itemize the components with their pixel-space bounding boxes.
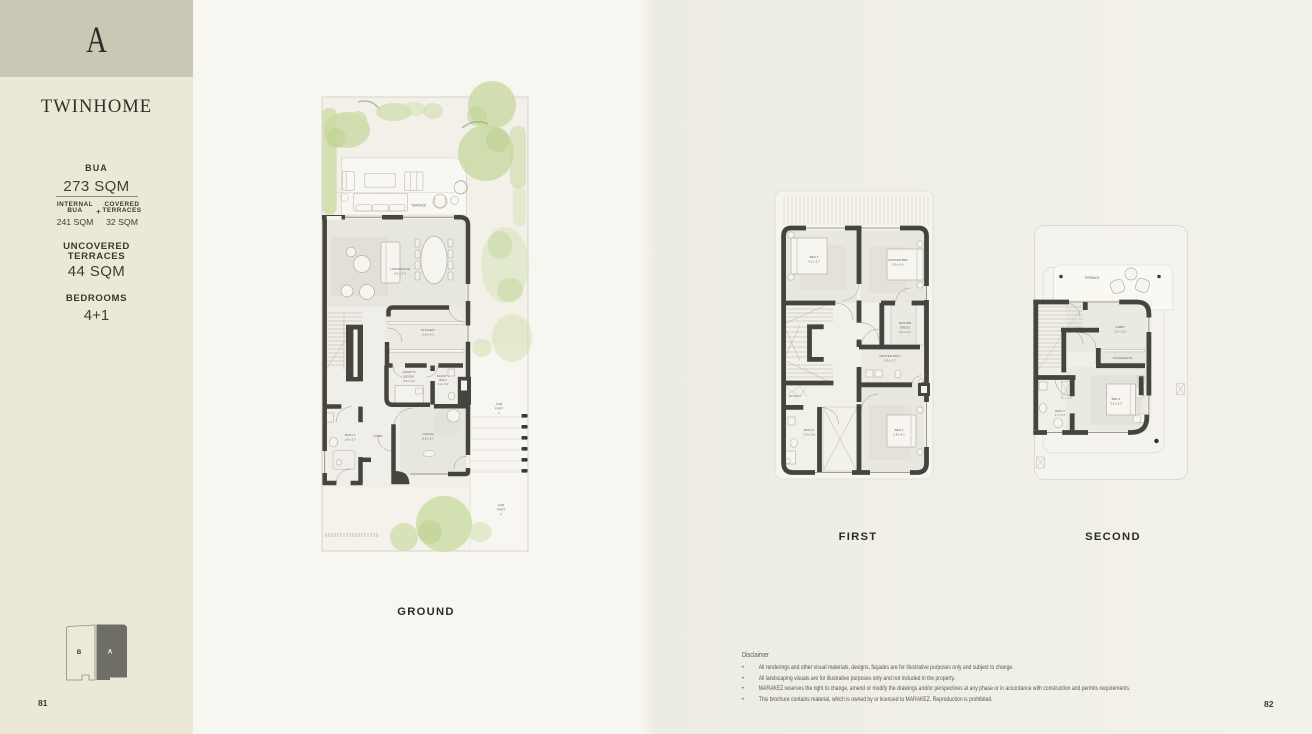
svg-text:1.7 x 2.7: 1.7 x 2.7 [1055,413,1066,417]
svg-text:LIVINGSPACE: LIVINGSPACE [390,267,410,271]
svg-text:MASTER BED: MASTER BED [888,258,908,262]
svg-text:4.2 x 3.7: 4.2 x 3.7 [808,260,820,264]
svg-text:BED 2: BED 2 [895,428,904,432]
svg-text:BATH 4: BATH 4 [345,433,356,437]
svg-text:NANNY'S: NANNY'S [402,370,415,374]
svg-text:MASTER BATH: MASTER BATH [879,354,900,358]
svg-text:1.8 x 3.7: 1.8 x 3.7 [344,438,356,442]
svg-text:PORT: PORT [497,508,505,512]
svg-text:3.5 x 3.7: 3.5 x 3.7 [422,437,434,441]
svg-text:1.2 x 2.0: 1.2 x 2.0 [438,382,449,386]
svg-text:2.8 x 4.1: 2.8 x 4.1 [893,433,905,437]
svg-text:KITCHEN: KITCHEN [421,328,434,332]
svg-text:B: B [77,650,82,656]
svg-text:2.6 x 4.1: 2.6 x 4.1 [422,333,434,337]
svg-text:OFFICE: OFFICE [423,432,434,436]
svg-text:CAR: CAR [496,402,503,406]
svg-text:BATH 2: BATH 2 [804,428,815,432]
svg-text:3.5 x 1.7: 3.5 x 1.7 [884,359,896,363]
svg-text:3.9 x 4.1: 3.9 x 4.1 [892,263,904,267]
svg-text:4.5 x 7.3: 4.5 x 7.3 [394,272,406,276]
svg-text:KITCHENETTE: KITCHENETTE [1113,356,1133,360]
svg-text:2.4 x 2.9: 2.4 x 2.9 [1114,330,1126,334]
svg-text:MASTER: MASTER [899,321,912,325]
svg-text:1.6 x 2.6: 1.6 x 2.6 [803,433,815,437]
svg-text:A: A [108,650,113,656]
svg-text:LOBBY: LOBBY [1115,325,1125,329]
svg-text:BED 4: BED 4 [1112,397,1121,401]
svg-text:2.4 x 2.0: 2.4 x 2.0 [403,379,415,383]
svg-text:TERRACE: TERRACE [411,204,426,208]
svg-text:CAR: CAR [498,503,505,507]
svg-text:3.2 x 2.2: 3.2 x 2.2 [899,330,911,334]
svg-text:DRESS: DRESS [900,326,910,330]
svg-text:BED 3: BED 3 [810,255,819,259]
svg-text:ROOM: ROOM [404,375,414,379]
svg-text:A/C DUCT: A/C DUCT [789,394,802,398]
svg-text:PORT: PORT [495,407,503,411]
svg-text:3.6 x 3.3: 3.6 x 3.3 [1110,402,1122,406]
svg-text:TERRACE: TERRACE [1084,276,1099,280]
